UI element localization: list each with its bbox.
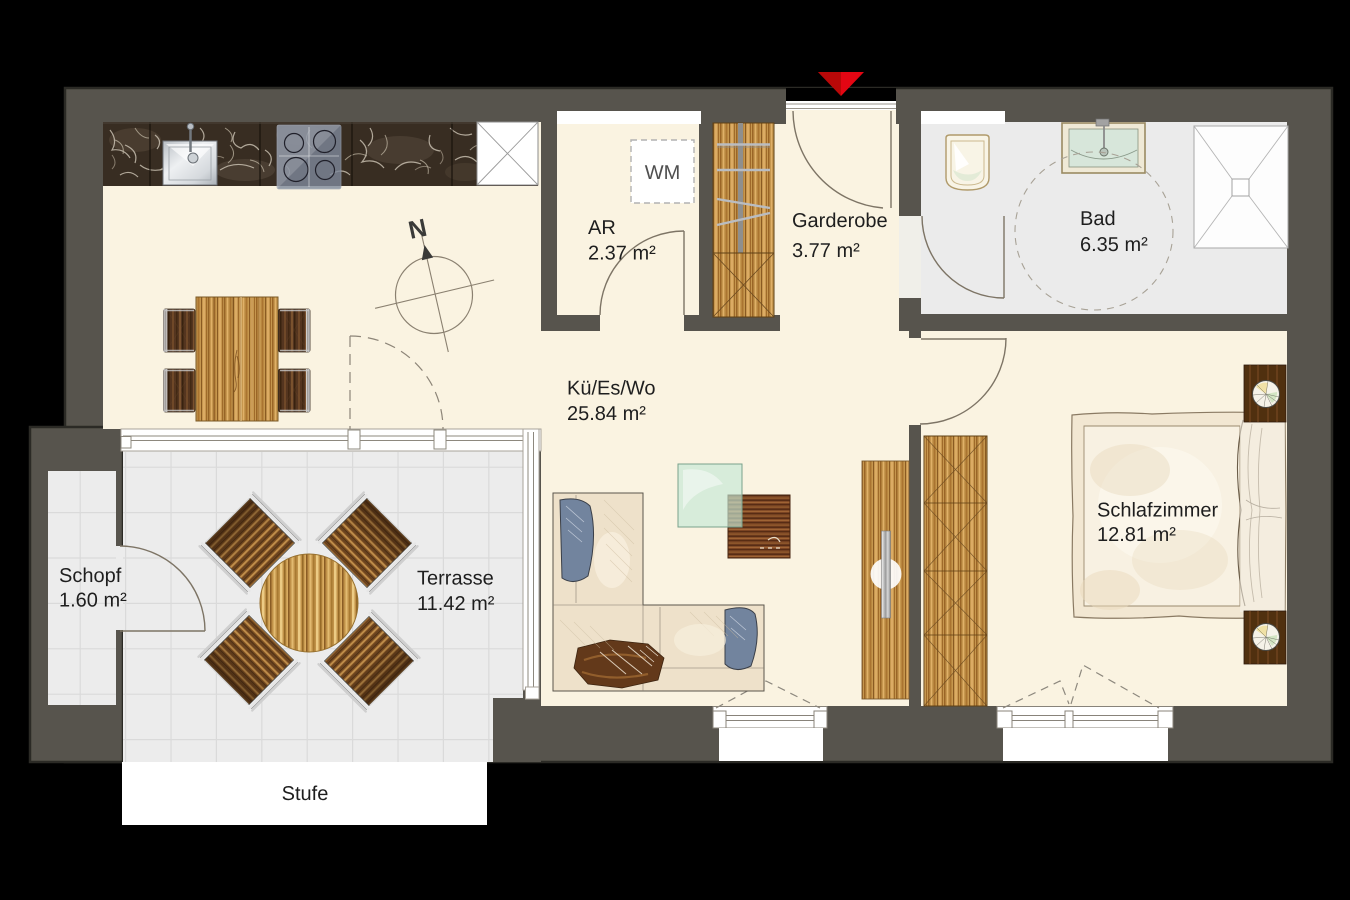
svg-text:Schlafzimmer: Schlafzimmer [1097,500,1218,522]
svg-text:2.37 m²: 2.37 m² [588,243,656,265]
svg-text:Kü/Es/Wo: Kü/Es/Wo [567,378,656,400]
svg-text:6.35 m²: 6.35 m² [1080,234,1148,256]
svg-text:11.42 m²: 11.42 m² [417,593,495,615]
svg-text:Bad: Bad [1080,208,1116,230]
svg-text:WM: WM [645,162,681,184]
svg-text:Terrasse: Terrasse [417,568,494,590]
svg-text:Garderobe: Garderobe [792,210,888,232]
svg-text:12.81 m²: 12.81 m² [1097,524,1176,546]
svg-text:AR: AR [588,217,616,239]
svg-text:1.60 m²: 1.60 m² [59,590,127,612]
svg-text:Stufe: Stufe [282,783,329,805]
svg-text:Schopf: Schopf [59,565,122,587]
svg-text:25.84 m²: 25.84 m² [567,403,646,425]
svg-text:3.77 m²: 3.77 m² [792,240,860,262]
